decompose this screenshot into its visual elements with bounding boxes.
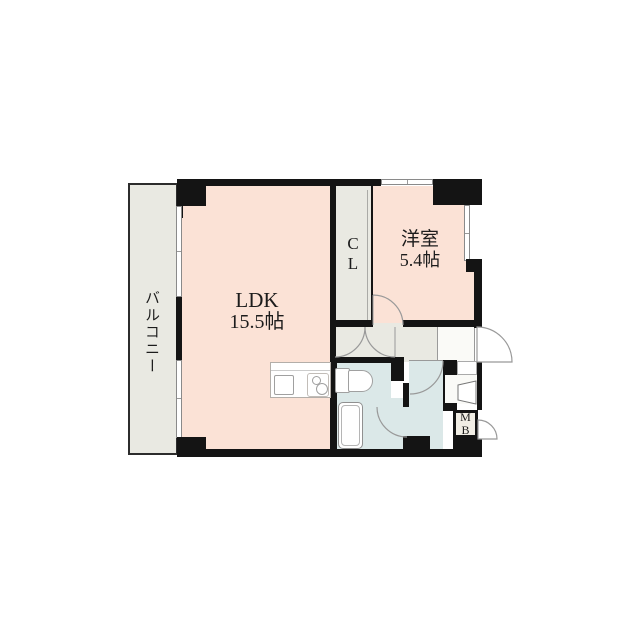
wall-bath-washroom bbox=[403, 383, 409, 407]
wall-closet-right bbox=[371, 186, 373, 323]
wall-left-mid bbox=[176, 297, 182, 360]
toilet-bowl-icon bbox=[348, 370, 373, 392]
window-right-western bbox=[464, 205, 470, 261]
window-balcony-upper bbox=[176, 206, 182, 297]
meter-box-door-arc bbox=[478, 420, 497, 439]
meter-box-char-2: B bbox=[454, 424, 477, 437]
closet-door-line bbox=[367, 190, 368, 320]
western-room-name: 洋室 bbox=[380, 229, 460, 250]
wall-block-bath-bottom bbox=[403, 436, 430, 452]
western-room-size: 5.4帖 bbox=[380, 250, 460, 270]
washroom-doorway-line bbox=[409, 360, 443, 361]
window-balcony-lower bbox=[176, 360, 182, 438]
entry-genkan-area bbox=[437, 325, 476, 362]
wall-right-step bbox=[466, 259, 482, 272]
wall-western-bottom-left bbox=[330, 320, 373, 327]
wall-western-bottom-right bbox=[403, 320, 482, 327]
window-top-western bbox=[381, 179, 433, 185]
washbasin-nook-area bbox=[443, 375, 477, 404]
wall-washroom-nook bbox=[443, 375, 445, 404]
exterior-gap bbox=[470, 204, 482, 260]
entry-step bbox=[457, 361, 477, 375]
bathtub-icon bbox=[338, 402, 363, 449]
pillar-top-left bbox=[177, 181, 206, 206]
ldk-name: LDK bbox=[196, 289, 318, 312]
kitchen-sink-icon bbox=[274, 375, 294, 395]
wall-ldk-right bbox=[330, 179, 336, 362]
ldk-size: 15.5帖 bbox=[196, 312, 318, 334]
balcony-label: バルコニー bbox=[142, 262, 162, 402]
wall-toilet-washroom bbox=[391, 357, 404, 381]
floor-plan: バルコニー LDK 15.5帖 C L 洋室 5.4帖 M B bbox=[0, 0, 640, 640]
wall-toilet-top bbox=[330, 357, 391, 363]
ldk-label: LDK 15.5帖 bbox=[196, 289, 318, 333]
entrance-opening bbox=[474, 328, 482, 362]
meter-box-label: M B bbox=[454, 411, 477, 437]
wall-right-mid bbox=[477, 362, 482, 410]
pillar-top-right bbox=[433, 179, 482, 205]
entrance-door-arc bbox=[477, 327, 512, 362]
western-room-label: 洋室 5.4帖 bbox=[380, 229, 460, 270]
closet-char-2: L bbox=[343, 254, 363, 274]
closet-char-1: C bbox=[343, 234, 363, 254]
wall-block-entry bbox=[443, 360, 457, 375]
stove-burner-icon bbox=[316, 383, 328, 395]
wall-top bbox=[177, 179, 381, 186]
closet-label: C L bbox=[343, 234, 363, 274]
